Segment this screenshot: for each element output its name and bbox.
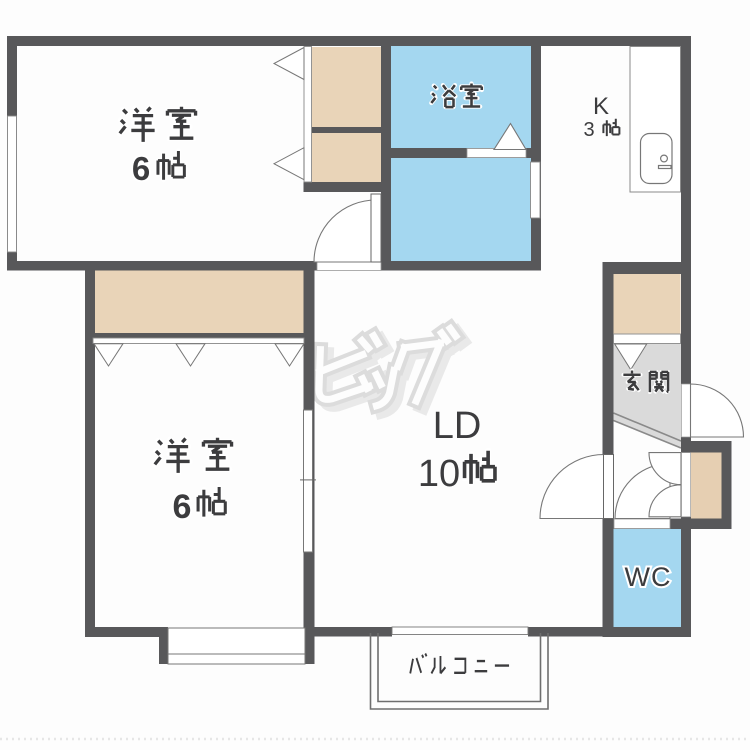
svg-text:6: 6 [132,150,150,187]
svg-text:WC: WC [625,562,672,592]
svg-text:K: K [593,93,609,120]
svg-text:LD: LD [433,405,482,447]
svg-text:3: 3 [583,119,594,141]
svg-text:10: 10 [418,453,460,495]
svg-text:6: 6 [173,488,192,526]
